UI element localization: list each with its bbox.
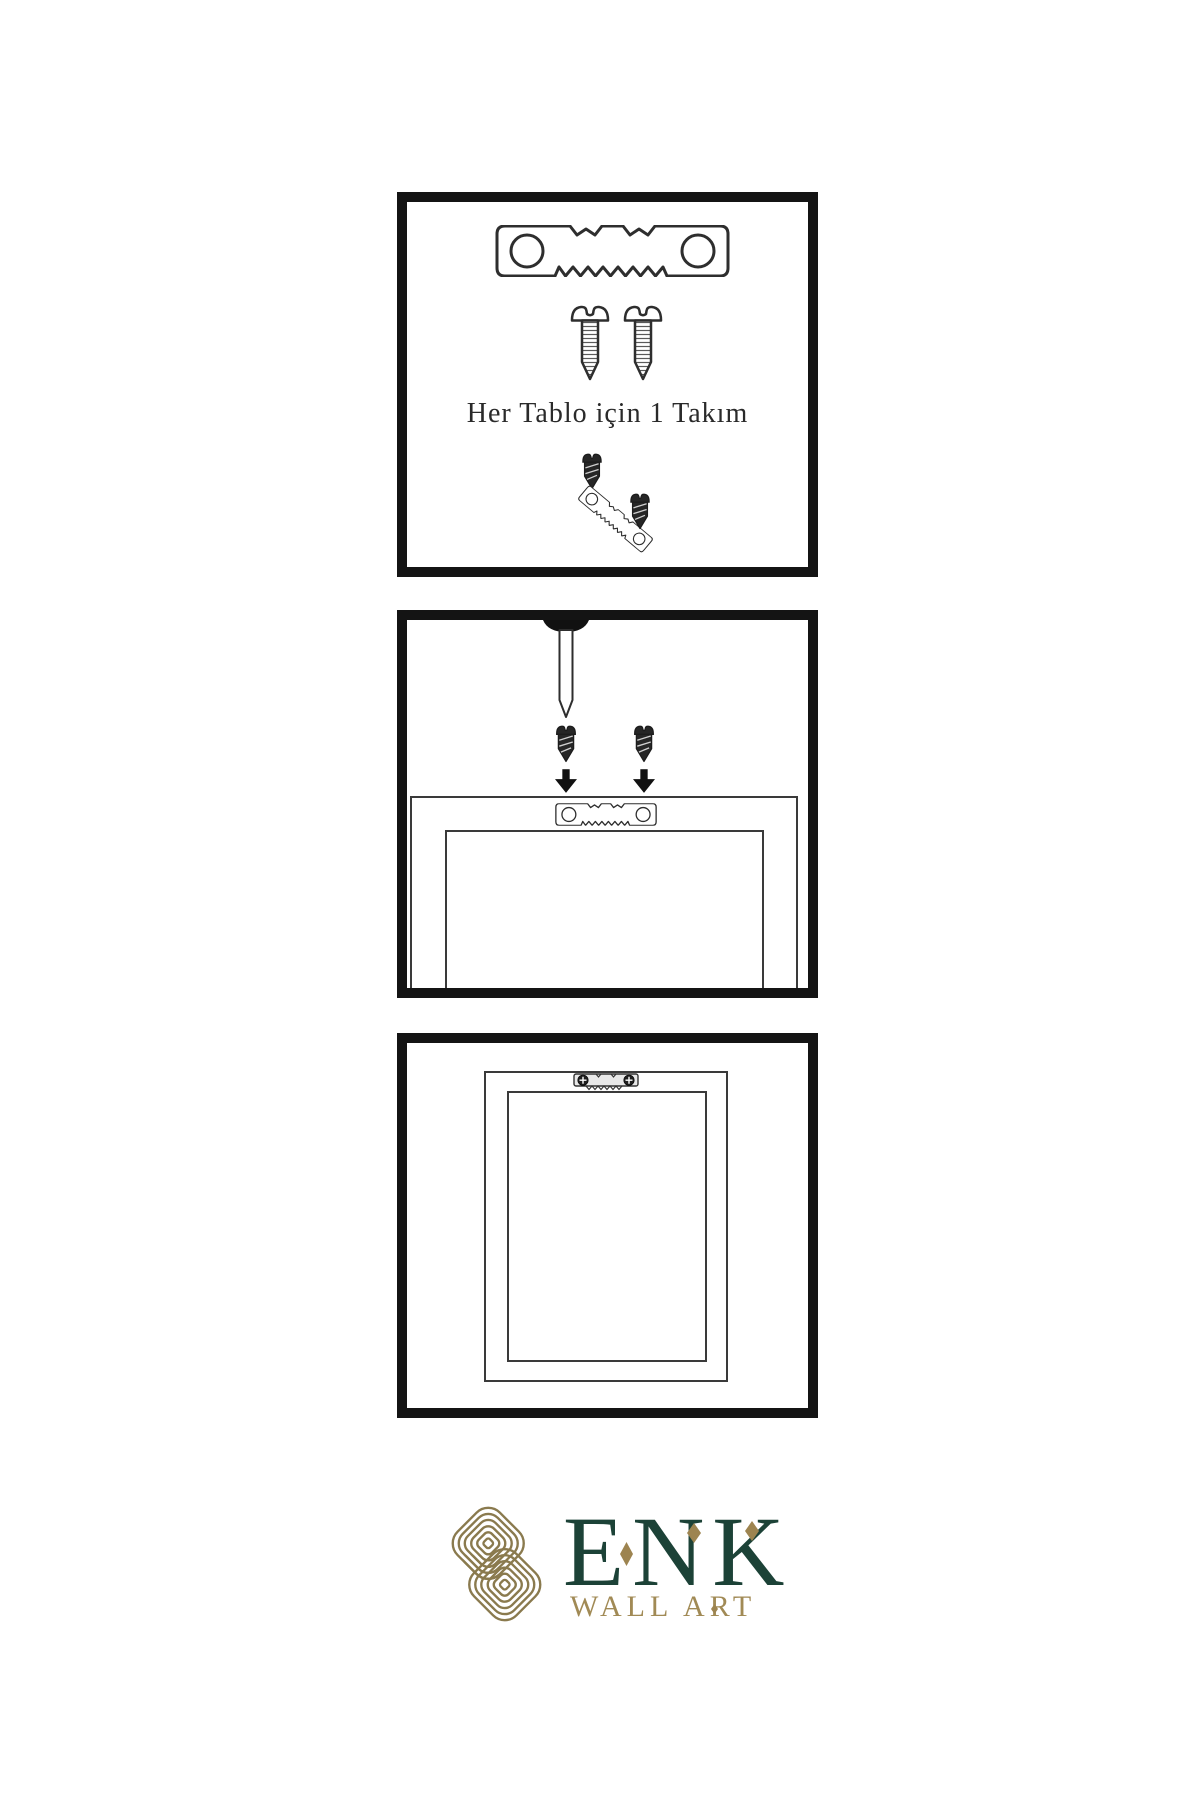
mounted-hanger-icon	[573, 1073, 639, 1091]
phillips-screw-head-icon	[624, 1075, 634, 1085]
screw-icon	[623, 305, 663, 383]
kit-caption: Her Tablo için 1 Takım	[407, 398, 808, 430]
dark-screw-icon	[633, 725, 655, 764]
screw-icon	[570, 305, 610, 383]
arrow-down-icon	[633, 769, 655, 793]
sawtooth-hanger-icon	[495, 225, 730, 277]
wall-nail-icon	[543, 620, 589, 720]
sawtooth-hanger-icon	[555, 802, 657, 827]
frame-inner-edge	[507, 1091, 707, 1362]
phillips-screw-head-icon	[578, 1075, 588, 1085]
knot-logo-icon	[440, 1500, 553, 1628]
frame-back-inner-edge	[445, 830, 764, 998]
brand-name: ENK	[563, 1502, 793, 1602]
panel-hardware-kit: Her Tablo için 1 Takım	[397, 192, 818, 577]
dark-screw-icon	[629, 493, 651, 531]
panel-hung-frame	[397, 1033, 818, 1418]
arrow-down-icon	[555, 769, 577, 793]
brand-tagline: WALL ART	[570, 1592, 756, 1622]
hanging-instructions-sheet: Her Tablo için 1 Takım	[0, 0, 1200, 1800]
dark-screw-icon	[555, 725, 577, 764]
panel-mounting-step	[397, 610, 818, 998]
